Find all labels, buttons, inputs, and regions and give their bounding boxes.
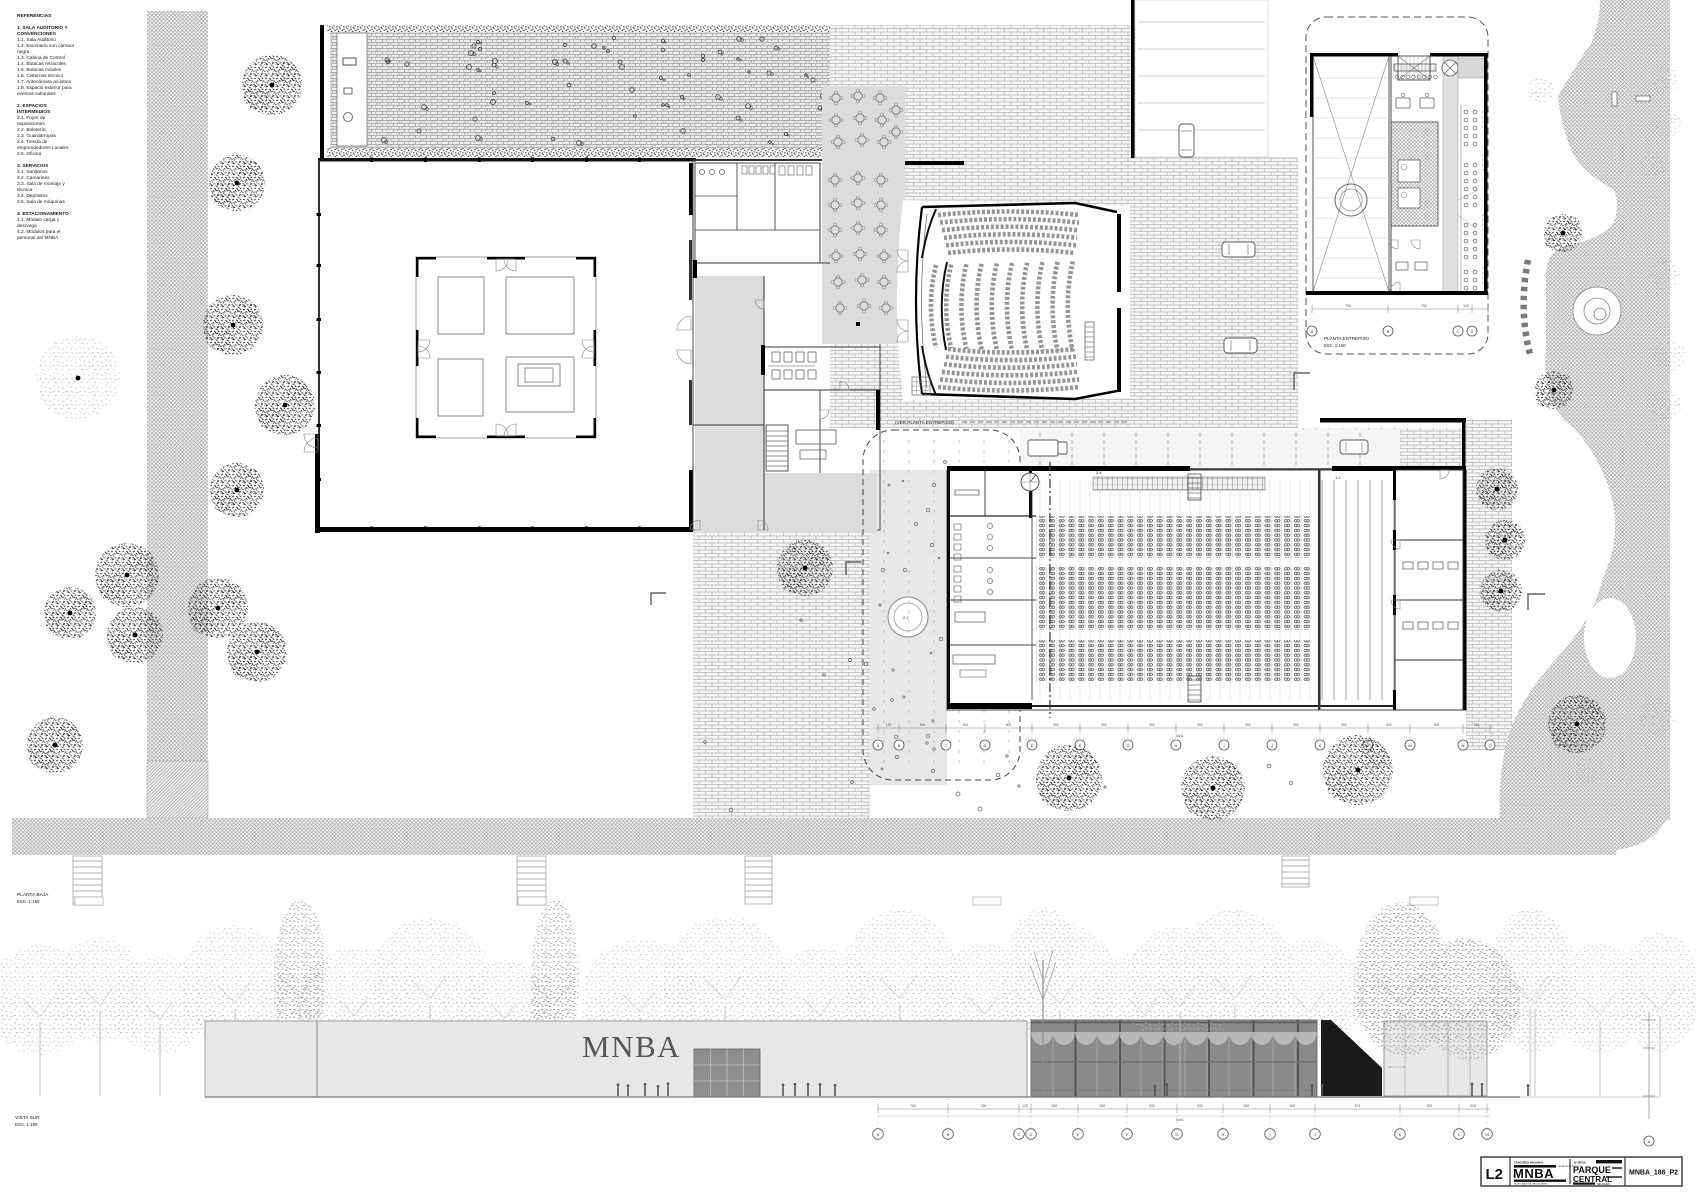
svg-text:500: 500	[1149, 1104, 1155, 1108]
svg-text:750: 750	[1345, 304, 1351, 308]
svg-text:I: I	[1269, 1132, 1270, 1137]
svg-text:K: K	[1399, 1132, 1402, 1137]
svg-text:B: B	[947, 1132, 950, 1137]
svg-text:3.3. Sala de montaje y: 3.3. Sala de montaje y	[17, 181, 65, 187]
svg-text:500: 500	[1101, 723, 1107, 727]
svg-text:A: A	[1311, 329, 1314, 334]
svg-text:2.5. Oficina: 2.5. Oficina	[17, 151, 42, 157]
svg-text:H: H	[1222, 1132, 1225, 1137]
svg-text:750: 750	[981, 1104, 987, 1108]
svg-text:L2: L2	[1486, 1166, 1504, 1183]
svg-text:PLANTA BAJA: PLANTA BAJA	[17, 892, 49, 898]
svg-text:ESC. 1:150: ESC. 1:150	[15, 1122, 38, 1127]
svg-text:emprendedores Locales: emprendedores Locales	[17, 145, 69, 151]
svg-text:3. SERVICIOS: 3. SERVICIOS	[17, 163, 49, 169]
svg-text:B: B	[898, 743, 901, 748]
svg-text:ESC. 1:150: ESC. 1:150	[1324, 343, 1346, 348]
svg-text:500: 500	[1149, 723, 1155, 727]
svg-text:A: A	[1648, 1139, 1651, 1144]
svg-text:500: 500	[1245, 723, 1251, 727]
svg-text:B: B	[1387, 329, 1390, 334]
svg-text:eventos culturales: eventos culturales	[17, 91, 56, 97]
svg-text:4. ESTACIONAMIENTO: 4. ESTACIONAMIENTO	[17, 211, 69, 217]
svg-text:personal del MNBA: personal del MNBA	[17, 235, 59, 241]
svg-text:500: 500	[1290, 1104, 1296, 1108]
svg-text:descarga: descarga	[17, 223, 37, 229]
svg-text:G: G	[1175, 1132, 1178, 1137]
svg-text:M: M	[1408, 743, 1411, 748]
svg-text:3.1. Sanitarios: 3.1. Sanitarios	[17, 169, 48, 175]
svg-text:1.5. Butacas móviles: 1.5. Butacas móviles	[17, 67, 62, 73]
svg-text:ESC. 1:150: ESC. 1:150	[17, 899, 40, 904]
svg-text:4.2. Módulos para el: 4.2. Módulos para el	[17, 229, 60, 235]
svg-text:316: 316	[1474, 723, 1480, 727]
svg-text:500: 500	[1053, 723, 1059, 727]
svg-text:G: G	[1126, 743, 1129, 748]
svg-text:318: 318	[1470, 1104, 1476, 1108]
svg-text:3.4. Depósitos: 3.4. Depósitos	[17, 193, 48, 199]
svg-text:500: 500	[1197, 1104, 1203, 1108]
svg-text:6441: 6441	[1176, 734, 1183, 738]
svg-text:2.3. Guardarropas: 2.3. Guardarropas	[17, 133, 57, 139]
svg-text:INTERMEDIOS: INTERMEDIOS	[17, 109, 51, 115]
svg-text:2.2. Boletería: 2.2. Boletería	[17, 127, 46, 133]
svg-text:VISTA SUR: VISTA SUR	[15, 1115, 40, 1121]
svg-text:NPT +/- 0.00: NPT +/- 0.00	[1388, 1065, 1405, 1069]
svg-text:D: D	[984, 743, 987, 748]
svg-text:500: 500	[1006, 723, 1012, 727]
svg-text:125: 125	[1463, 304, 1469, 308]
svg-text:I: I	[1223, 743, 1224, 748]
svg-text:3.2. Camarines: 3.2. Camarines	[17, 175, 50, 181]
svg-text:1.1. Sala Auditorio: 1.1. Sala Auditorio	[17, 37, 56, 43]
svg-text:500: 500	[920, 723, 926, 727]
svg-text:CONCURSO NACIONAL: CONCURSO NACIONAL	[1514, 1161, 1544, 1165]
svg-text:D: D	[1030, 1132, 1033, 1137]
svg-text:CONVENCIONES: CONVENCIONES	[17, 31, 57, 37]
svg-text:1.8. Espacio exterior para: 1.8. Espacio exterior para	[17, 85, 72, 91]
svg-text:C: C	[1457, 329, 1460, 334]
svg-text:H: H	[1175, 743, 1178, 748]
svg-text:MUSEO NACIONAL BELLAS ARTES: MUSEO NACIONAL BELLAS ARTES	[1514, 1183, 1548, 1186]
svg-text:MNBA_186_P2: MNBA_186_P2	[1629, 1170, 1678, 1177]
svg-text:N: N	[1462, 743, 1465, 748]
svg-text:500: 500	[1052, 1104, 1058, 1108]
svg-text:D: D	[1471, 329, 1474, 334]
svg-text:1.2. Escenario con cámara: 1.2. Escenario con cámara	[17, 43, 74, 49]
svg-text:500: 500	[1197, 723, 1203, 727]
svg-text:2. ESPACIOS: 2. ESPACIOS	[17, 103, 48, 109]
svg-text:negra: negra	[17, 49, 30, 55]
svg-text:C: C	[945, 743, 948, 748]
svg-text:750: 750	[1421, 304, 1427, 308]
svg-text:técnica.: técnica.	[17, 187, 34, 193]
svg-text:1.6. Cisternas técnico: 1.6. Cisternas técnico	[17, 73, 63, 79]
svg-text:1.7. Antecámara acústica: 1.7. Antecámara acústica	[17, 79, 71, 85]
svg-text:125: 125	[1022, 1104, 1028, 1108]
svg-text:C: C	[1018, 1132, 1021, 1137]
svg-text:875: 875	[1355, 1104, 1361, 1108]
svg-text:MNBA: MNBA	[1513, 1166, 1554, 1181]
svg-text:MNBA: MNBA	[582, 1029, 681, 1064]
svg-text:PLANTA ENTREPISO: PLANTA ENTREPISO	[1324, 336, 1370, 341]
svg-text:2.1. Foyer de: 2.1. Foyer de	[17, 115, 46, 121]
svg-text:2.4: 2.4	[1096, 470, 1102, 475]
svg-text:3.5. Sala de máquinas: 3.5. Sala de máquinas	[17, 199, 65, 205]
svg-text:REFERENCIAS: REFERENCIAS	[17, 13, 52, 19]
svg-text:E: E	[1077, 1132, 1080, 1137]
svg-text:1.4. Butacas retráctiles: 1.4. Butacas retráctiles	[17, 61, 66, 67]
svg-text:K: K	[1319, 743, 1322, 748]
svg-text:1.3. Cabina de Control: 1.3. Cabina de Control	[17, 55, 65, 61]
svg-text:500: 500	[1244, 1104, 1250, 1108]
svg-text:500: 500	[1100, 1104, 1106, 1108]
svg-text:O: O	[1488, 743, 1491, 748]
svg-text:exposiciones: exposiciones	[17, 121, 45, 127]
svg-text:125: 125	[886, 723, 892, 727]
svg-text:625: 625	[1427, 1104, 1433, 1108]
svg-text:J: J	[1314, 1132, 1316, 1137]
svg-text:500: 500	[1341, 723, 1347, 727]
svg-text:500: 500	[1293, 723, 1299, 727]
svg-text:PARQUE: PARQUE	[1573, 1165, 1611, 1175]
svg-text:500: 500	[1386, 723, 1392, 727]
svg-text:J: J	[1271, 743, 1273, 748]
svg-text:500: 500	[963, 723, 969, 727]
svg-text:N° IDEAS: N° IDEAS	[1574, 1161, 1586, 1165]
svg-text:(VER PLANTA ENTREPISO): (VER PLANTA ENTREPISO)	[895, 420, 954, 425]
svg-text:2.4. Tienda de: 2.4. Tienda de	[17, 139, 48, 145]
svg-text:500: 500	[1434, 723, 1440, 727]
svg-text:2.2: 2.2	[903, 615, 909, 620]
svg-text:1.2: 1.2	[1335, 475, 1341, 480]
svg-text:M: M	[1485, 1132, 1488, 1137]
svg-text:4.1. Módulo carga y: 4.1. Módulo carga y	[17, 217, 60, 223]
svg-text:E: E	[1031, 743, 1034, 748]
svg-text:A: A	[877, 1132, 880, 1137]
svg-text:750: 750	[910, 1104, 916, 1108]
svg-text:A: A	[877, 743, 880, 748]
svg-text:6441: 6441	[1176, 1118, 1184, 1122]
svg-text:1. SALA AUDITORIO Y: 1. SALA AUDITORIO Y	[17, 25, 68, 31]
